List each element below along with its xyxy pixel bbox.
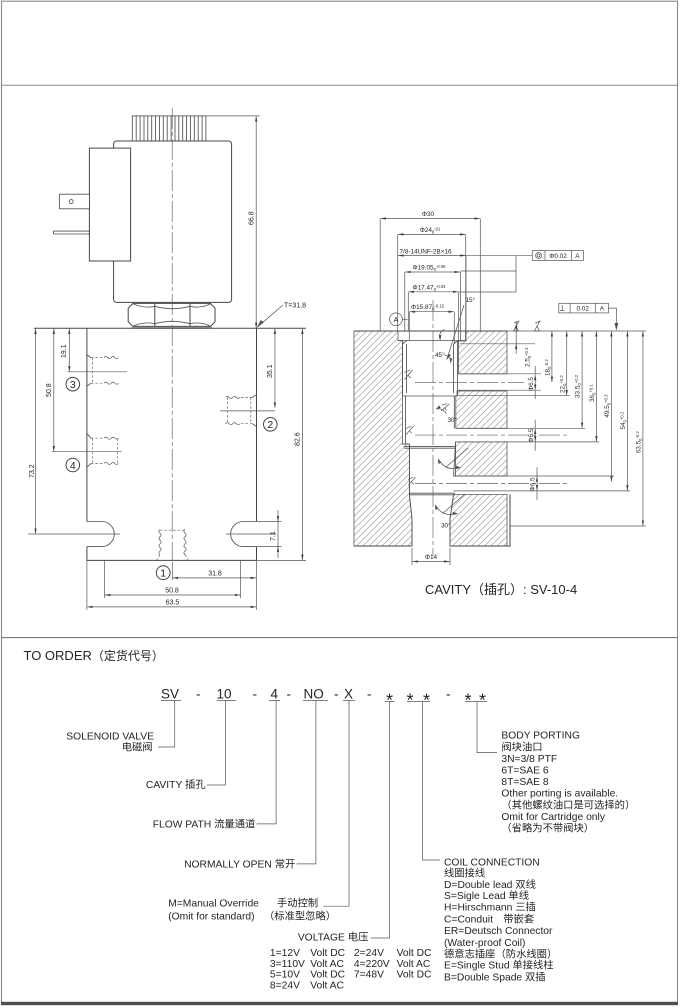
svg-text:CAVITY 插孔: CAVITY 插孔 bbox=[146, 778, 206, 791]
svg-text:BODY PORTING: BODY PORTING bbox=[501, 730, 580, 741]
svg-text:63.5: 63.5 bbox=[166, 599, 180, 606]
svg-text:Volt DC: Volt DC bbox=[310, 948, 345, 959]
svg-text:50.8: 50.8 bbox=[46, 383, 53, 397]
svg-text:49.50+0.3: 49.50+0.3 bbox=[604, 394, 612, 418]
svg-text:（标准型忽略）: （标准型忽略） bbox=[264, 910, 336, 923]
svg-text:*: * bbox=[464, 691, 471, 711]
svg-text:-: - bbox=[196, 687, 201, 702]
svg-text:3=110V: 3=110V bbox=[270, 959, 305, 970]
svg-text:X: X bbox=[344, 687, 353, 702]
svg-text:10: 10 bbox=[217, 687, 232, 702]
svg-text:*: * bbox=[479, 691, 486, 711]
svg-text:7/8-14UNF-2B×16: 7/8-14UNF-2B×16 bbox=[400, 249, 452, 256]
svg-text:Φ6.5: Φ6.5 bbox=[528, 428, 535, 442]
svg-text:73.2: 73.2 bbox=[29, 464, 36, 478]
svg-text:S=Sigle Lead 单线: S=Sigle Lead 单线 bbox=[444, 889, 529, 902]
svg-text:Φ6.5: Φ6.5 bbox=[530, 477, 537, 491]
svg-text:3N=3/8 PTF: 3N=3/8 PTF bbox=[501, 754, 557, 765]
svg-text:220+0.2: 220+0.2 bbox=[559, 375, 567, 393]
svg-text:1: 1 bbox=[160, 568, 166, 580]
svg-text:180-0.2: 180-0.2 bbox=[544, 359, 552, 376]
svg-text:(Water-proof Coil): (Water-proof Coil) bbox=[444, 938, 525, 949]
svg-text:A: A bbox=[394, 317, 399, 324]
svg-text:Φ0.02: Φ0.02 bbox=[549, 253, 567, 260]
svg-text:1=12V: 1=12V bbox=[270, 948, 300, 959]
svg-text:德意志插座（防水线圈）: 德意志插座（防水线圈） bbox=[444, 948, 557, 961]
svg-text:Volt AC: Volt AC bbox=[397, 959, 431, 970]
svg-text:(Omit for standard): (Omit for standard) bbox=[168, 912, 254, 923]
svg-text:-: - bbox=[253, 687, 258, 702]
svg-text:SV: SV bbox=[161, 687, 179, 702]
svg-text:45°: 45° bbox=[435, 351, 445, 359]
svg-text:5=10V: 5=10V bbox=[270, 970, 300, 981]
svg-text:31.8: 31.8 bbox=[208, 571, 222, 578]
svg-text:线圈接线: 线圈接线 bbox=[444, 867, 485, 880]
svg-text:82.6: 82.6 bbox=[295, 432, 302, 446]
svg-text:Φ240-01: Φ240-01 bbox=[420, 226, 441, 234]
svg-text:2: 2 bbox=[267, 419, 273, 431]
svg-text:B=Double Spade 双插: B=Double Spade 双插 bbox=[444, 970, 546, 983]
svg-text:阀块油口: 阀块油口 bbox=[501, 741, 542, 754]
svg-text:电磁阀: 电磁阀 bbox=[122, 741, 153, 754]
svg-text:Φ17.470-0.04: Φ17.470-0.04 bbox=[413, 284, 447, 292]
svg-text:H=Hirschmann 三插: H=Hirschmann 三插 bbox=[444, 901, 536, 914]
svg-text:*: * bbox=[423, 691, 430, 711]
svg-text:3: 3 bbox=[70, 379, 76, 391]
svg-text:（其他螺纹油口是可选择的）: （其他螺纹油口是可选择的） bbox=[501, 798, 635, 811]
svg-text:Φ14: Φ14 bbox=[425, 554, 438, 561]
svg-text:33.50+0.2: 33.50+0.2 bbox=[574, 374, 582, 398]
svg-text:-: - bbox=[287, 687, 292, 702]
svg-text:4: 4 bbox=[271, 687, 279, 702]
svg-text:19.1: 19.1 bbox=[61, 344, 68, 358]
svg-text:8=24V: 8=24V bbox=[270, 980, 300, 991]
svg-text:-: - bbox=[367, 687, 372, 702]
svg-text:-: - bbox=[334, 687, 339, 702]
svg-text:Volt DC: Volt DC bbox=[397, 948, 432, 959]
svg-text:A: A bbox=[575, 253, 580, 260]
svg-text:Volt AC: Volt AC bbox=[310, 980, 344, 991]
svg-text:50.8: 50.8 bbox=[165, 587, 179, 594]
svg-text:4=220V: 4=220V bbox=[354, 959, 390, 970]
svg-text:Volt AC: Volt AC bbox=[310, 959, 344, 970]
svg-text:4: 4 bbox=[70, 460, 76, 472]
svg-text:SOLENOID VALVE: SOLENOID VALVE bbox=[66, 732, 154, 743]
svg-text:VOLTAGE 电压: VOLTAGE 电压 bbox=[298, 931, 369, 944]
svg-text:2=24V: 2=24V bbox=[354, 948, 384, 959]
svg-text:Φ15.870-0.15: Φ15.870-0.15 bbox=[411, 304, 445, 312]
svg-text:540+0.2: 540+0.2 bbox=[620, 411, 628, 429]
svg-text:TO ORDER（定货代号）: TO ORDER（定货代号） bbox=[24, 648, 164, 663]
svg-text:8T=SAE 8: 8T=SAE 8 bbox=[501, 777, 548, 788]
svg-text:Φ6.5: Φ6.5 bbox=[528, 377, 535, 391]
svg-text:C=Conduit 带嵌套: C=Conduit 带嵌套 bbox=[444, 912, 534, 925]
svg-text:-: - bbox=[446, 687, 451, 702]
svg-text:Other porting is available.: Other porting is available. bbox=[501, 789, 618, 800]
svg-text:E=Single Stud 单接线柱: E=Single Stud 单接线柱 bbox=[444, 959, 554, 972]
svg-text:Φ30: Φ30 bbox=[422, 211, 435, 218]
svg-text:0.02: 0.02 bbox=[576, 306, 589, 313]
svg-text:7.1: 7.1 bbox=[270, 531, 277, 541]
svg-text:7=48V: 7=48V bbox=[354, 970, 384, 981]
svg-text:NORMALLY OPEN 常开: NORMALLY OPEN 常开 bbox=[184, 858, 295, 871]
svg-text:Omit for Cartridge only: Omit for Cartridge only bbox=[501, 812, 605, 823]
svg-text:Volt DC: Volt DC bbox=[310, 970, 345, 981]
svg-text:手动控制: 手动控制 bbox=[277, 897, 318, 910]
svg-text:*: * bbox=[406, 691, 413, 711]
svg-text:D=Double lead 双线: D=Double lead 双线 bbox=[444, 878, 536, 891]
svg-text:CAVITY（插孔）: SV-10-4: CAVITY（插孔）: SV-10-4 bbox=[425, 582, 577, 597]
svg-text:Volt DC: Volt DC bbox=[397, 970, 432, 981]
svg-text:T=31.8: T=31.8 bbox=[284, 303, 306, 310]
svg-text:FLOW PATH 流量通道: FLOW PATH 流量通道 bbox=[153, 818, 256, 831]
svg-text:6T=SAE 6: 6T=SAE 6 bbox=[501, 766, 548, 777]
svg-text:M=Manual Override: M=Manual Override bbox=[168, 899, 259, 910]
svg-text:2.50+0.3: 2.50+0.3 bbox=[524, 347, 532, 367]
svg-text:66.8: 66.8 bbox=[249, 211, 256, 225]
svg-text:（省略为不带阀块）: （省略为不带阀块） bbox=[501, 821, 594, 834]
svg-text:360+0.1: 360+0.1 bbox=[589, 384, 597, 402]
svg-text:ER=Deutsch Connector: ER=Deutsch Connector bbox=[444, 926, 553, 937]
svg-text:Φ19.050-0.05: Φ19.050-0.05 bbox=[413, 264, 447, 272]
svg-text:15°: 15° bbox=[466, 296, 476, 304]
svg-text:63.50-0.2: 63.50-0.2 bbox=[635, 431, 643, 454]
svg-text:30°: 30° bbox=[441, 522, 451, 530]
svg-text:A: A bbox=[600, 306, 605, 313]
svg-text:NO: NO bbox=[304, 687, 324, 702]
svg-text:30°: 30° bbox=[448, 416, 458, 424]
svg-text:35.1: 35.1 bbox=[267, 364, 274, 378]
svg-text:COIL CONNECTION: COIL CONNECTION bbox=[444, 858, 540, 869]
